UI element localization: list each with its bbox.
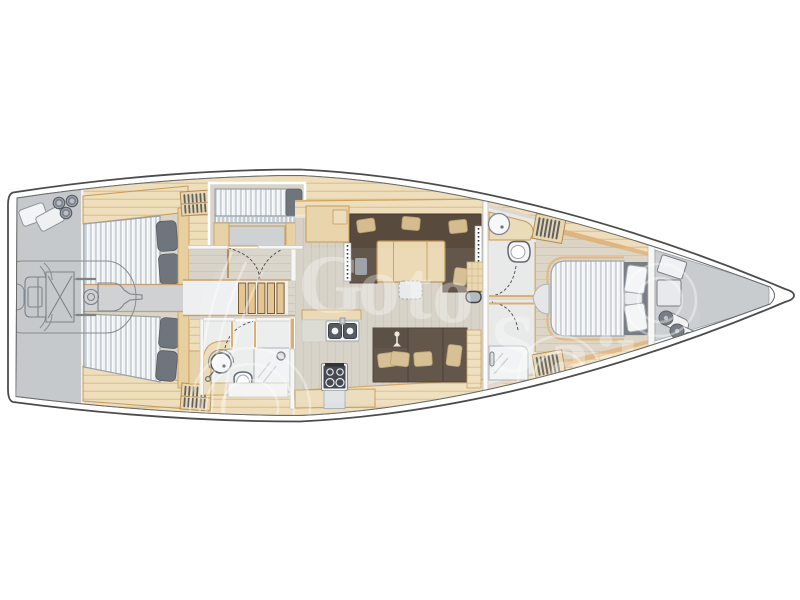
svg-text:S: S	[490, 298, 537, 391]
svg-text:G: G	[298, 238, 363, 331]
svg-text:o: o	[432, 248, 474, 341]
svg-text:o: o	[358, 240, 400, 333]
svg-text:t: t	[404, 244, 432, 337]
svg-text:a: a	[548, 310, 590, 403]
svg-text:l: l	[616, 324, 639, 417]
